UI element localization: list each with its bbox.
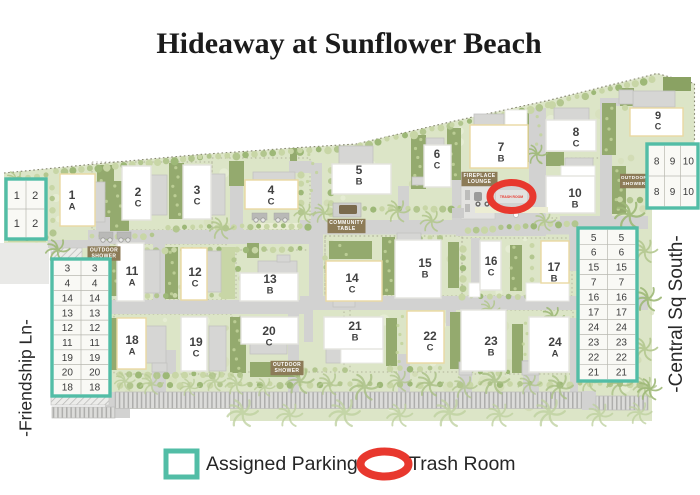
- svg-text:13: 13: [89, 308, 101, 319]
- svg-text:23: 23: [588, 338, 600, 349]
- svg-text:B: B: [498, 153, 505, 164]
- svg-text:22: 22: [588, 352, 600, 363]
- svg-text:11: 11: [89, 338, 100, 349]
- svg-text:Assigned Parking: Assigned Parking: [206, 453, 358, 475]
- svg-text:18: 18: [89, 382, 101, 393]
- svg-text:19: 19: [62, 353, 74, 364]
- svg-text:C: C: [135, 198, 142, 209]
- svg-text:C: C: [434, 160, 441, 170]
- svg-text:OUTDOOR: OUTDOOR: [621, 175, 648, 180]
- svg-text:11: 11: [62, 338, 73, 349]
- svg-text:16: 16: [588, 293, 600, 304]
- svg-text:24: 24: [616, 323, 628, 334]
- svg-text:7: 7: [591, 278, 597, 289]
- svg-text:20: 20: [62, 368, 74, 379]
- svg-text:22: 22: [616, 352, 628, 363]
- svg-text:2: 2: [135, 185, 142, 199]
- svg-text:Trash Room: Trash Room: [409, 453, 516, 475]
- svg-text:7: 7: [619, 278, 625, 289]
- svg-text:B: B: [352, 332, 359, 343]
- svg-text:15: 15: [418, 256, 432, 270]
- svg-text:3: 3: [65, 264, 71, 275]
- svg-text:C: C: [349, 284, 356, 295]
- svg-text:4: 4: [268, 183, 275, 197]
- svg-text:A: A: [552, 348, 559, 359]
- svg-text:C: C: [192, 278, 199, 289]
- svg-text:4: 4: [65, 279, 71, 290]
- svg-text:C: C: [266, 337, 273, 348]
- svg-text:Hideaway at Sunflower Beach: Hideaway at Sunflower Beach: [156, 27, 542, 60]
- svg-text:5: 5: [591, 233, 597, 244]
- svg-text:LOUNGE: LOUNGE: [468, 179, 492, 185]
- svg-text:-Central Sq South-: -Central Sq South-: [666, 235, 687, 392]
- svg-text:6: 6: [434, 149, 440, 161]
- svg-text:17: 17: [588, 308, 600, 319]
- svg-text:20: 20: [262, 324, 276, 338]
- svg-text:2: 2: [32, 190, 38, 202]
- svg-text:23: 23: [616, 338, 628, 349]
- svg-text:15: 15: [588, 263, 600, 274]
- svg-text:10: 10: [568, 186, 582, 200]
- svg-text:C: C: [573, 138, 580, 149]
- svg-text:21: 21: [588, 367, 600, 378]
- svg-text:6: 6: [619, 248, 625, 259]
- svg-text:10: 10: [683, 187, 695, 198]
- svg-text:C: C: [655, 121, 662, 131]
- svg-text:7: 7: [498, 140, 505, 154]
- svg-text:24: 24: [548, 335, 562, 349]
- svg-text:12: 12: [62, 323, 74, 334]
- svg-text:12: 12: [89, 323, 101, 334]
- svg-text:9: 9: [670, 156, 676, 167]
- svg-text:12: 12: [188, 265, 202, 279]
- svg-text:17: 17: [548, 262, 561, 274]
- svg-text:B: B: [267, 285, 274, 296]
- svg-text:TRASH ROOM: TRASH ROOM: [500, 195, 523, 199]
- svg-text:B: B: [356, 176, 363, 187]
- svg-text:SHOWER: SHOWER: [622, 181, 645, 186]
- svg-text:4: 4: [92, 279, 98, 290]
- svg-text:9: 9: [670, 187, 676, 198]
- svg-text:14: 14: [345, 271, 359, 285]
- svg-text:A: A: [69, 201, 76, 212]
- svg-text:8: 8: [654, 156, 660, 167]
- svg-text:13: 13: [62, 308, 74, 319]
- svg-text:8: 8: [654, 187, 660, 198]
- svg-text:1: 1: [14, 190, 20, 202]
- svg-text:8: 8: [573, 125, 580, 139]
- svg-text:13: 13: [263, 272, 277, 286]
- svg-text:10: 10: [683, 156, 695, 167]
- svg-text:24: 24: [588, 323, 600, 334]
- svg-text:TABLE: TABLE: [337, 226, 356, 232]
- svg-text:SHOWER: SHOWER: [275, 368, 300, 374]
- svg-text:1: 1: [14, 218, 20, 230]
- svg-text:20: 20: [89, 368, 101, 379]
- svg-text:16: 16: [485, 256, 498, 268]
- svg-text:14: 14: [89, 293, 101, 304]
- svg-text:5: 5: [619, 233, 625, 244]
- svg-text:2: 2: [32, 218, 38, 230]
- svg-text:16: 16: [616, 293, 628, 304]
- svg-text:18: 18: [125, 333, 139, 347]
- svg-text:B: B: [488, 347, 495, 358]
- svg-text:6: 6: [591, 248, 597, 259]
- svg-text:A: A: [129, 277, 136, 288]
- svg-text:-Friendship Ln-: -Friendship Ln-: [16, 319, 36, 437]
- svg-text:15: 15: [616, 263, 628, 274]
- svg-text:5: 5: [356, 163, 363, 177]
- svg-text:C: C: [268, 196, 275, 207]
- svg-text:3: 3: [92, 264, 98, 275]
- svg-text:C: C: [193, 348, 200, 359]
- svg-text:A: A: [129, 346, 136, 357]
- svg-text:19: 19: [189, 335, 203, 349]
- svg-text:C: C: [194, 196, 201, 207]
- svg-text:22: 22: [423, 329, 437, 343]
- svg-text:9: 9: [655, 110, 661, 122]
- svg-text:19: 19: [89, 353, 101, 364]
- svg-text:17: 17: [616, 308, 628, 319]
- svg-text:21: 21: [348, 319, 362, 333]
- svg-text:3: 3: [194, 183, 201, 197]
- svg-text:14: 14: [62, 293, 74, 304]
- svg-text:1: 1: [69, 188, 76, 202]
- svg-text:23: 23: [484, 334, 498, 348]
- svg-text:C: C: [427, 342, 434, 353]
- svg-text:B: B: [551, 273, 558, 284]
- svg-text:C: C: [488, 267, 495, 278]
- svg-text:21: 21: [616, 367, 628, 378]
- svg-text:B: B: [422, 269, 429, 280]
- svg-text:11: 11: [126, 264, 139, 278]
- svg-text:18: 18: [62, 382, 74, 393]
- svg-text:B: B: [572, 199, 579, 210]
